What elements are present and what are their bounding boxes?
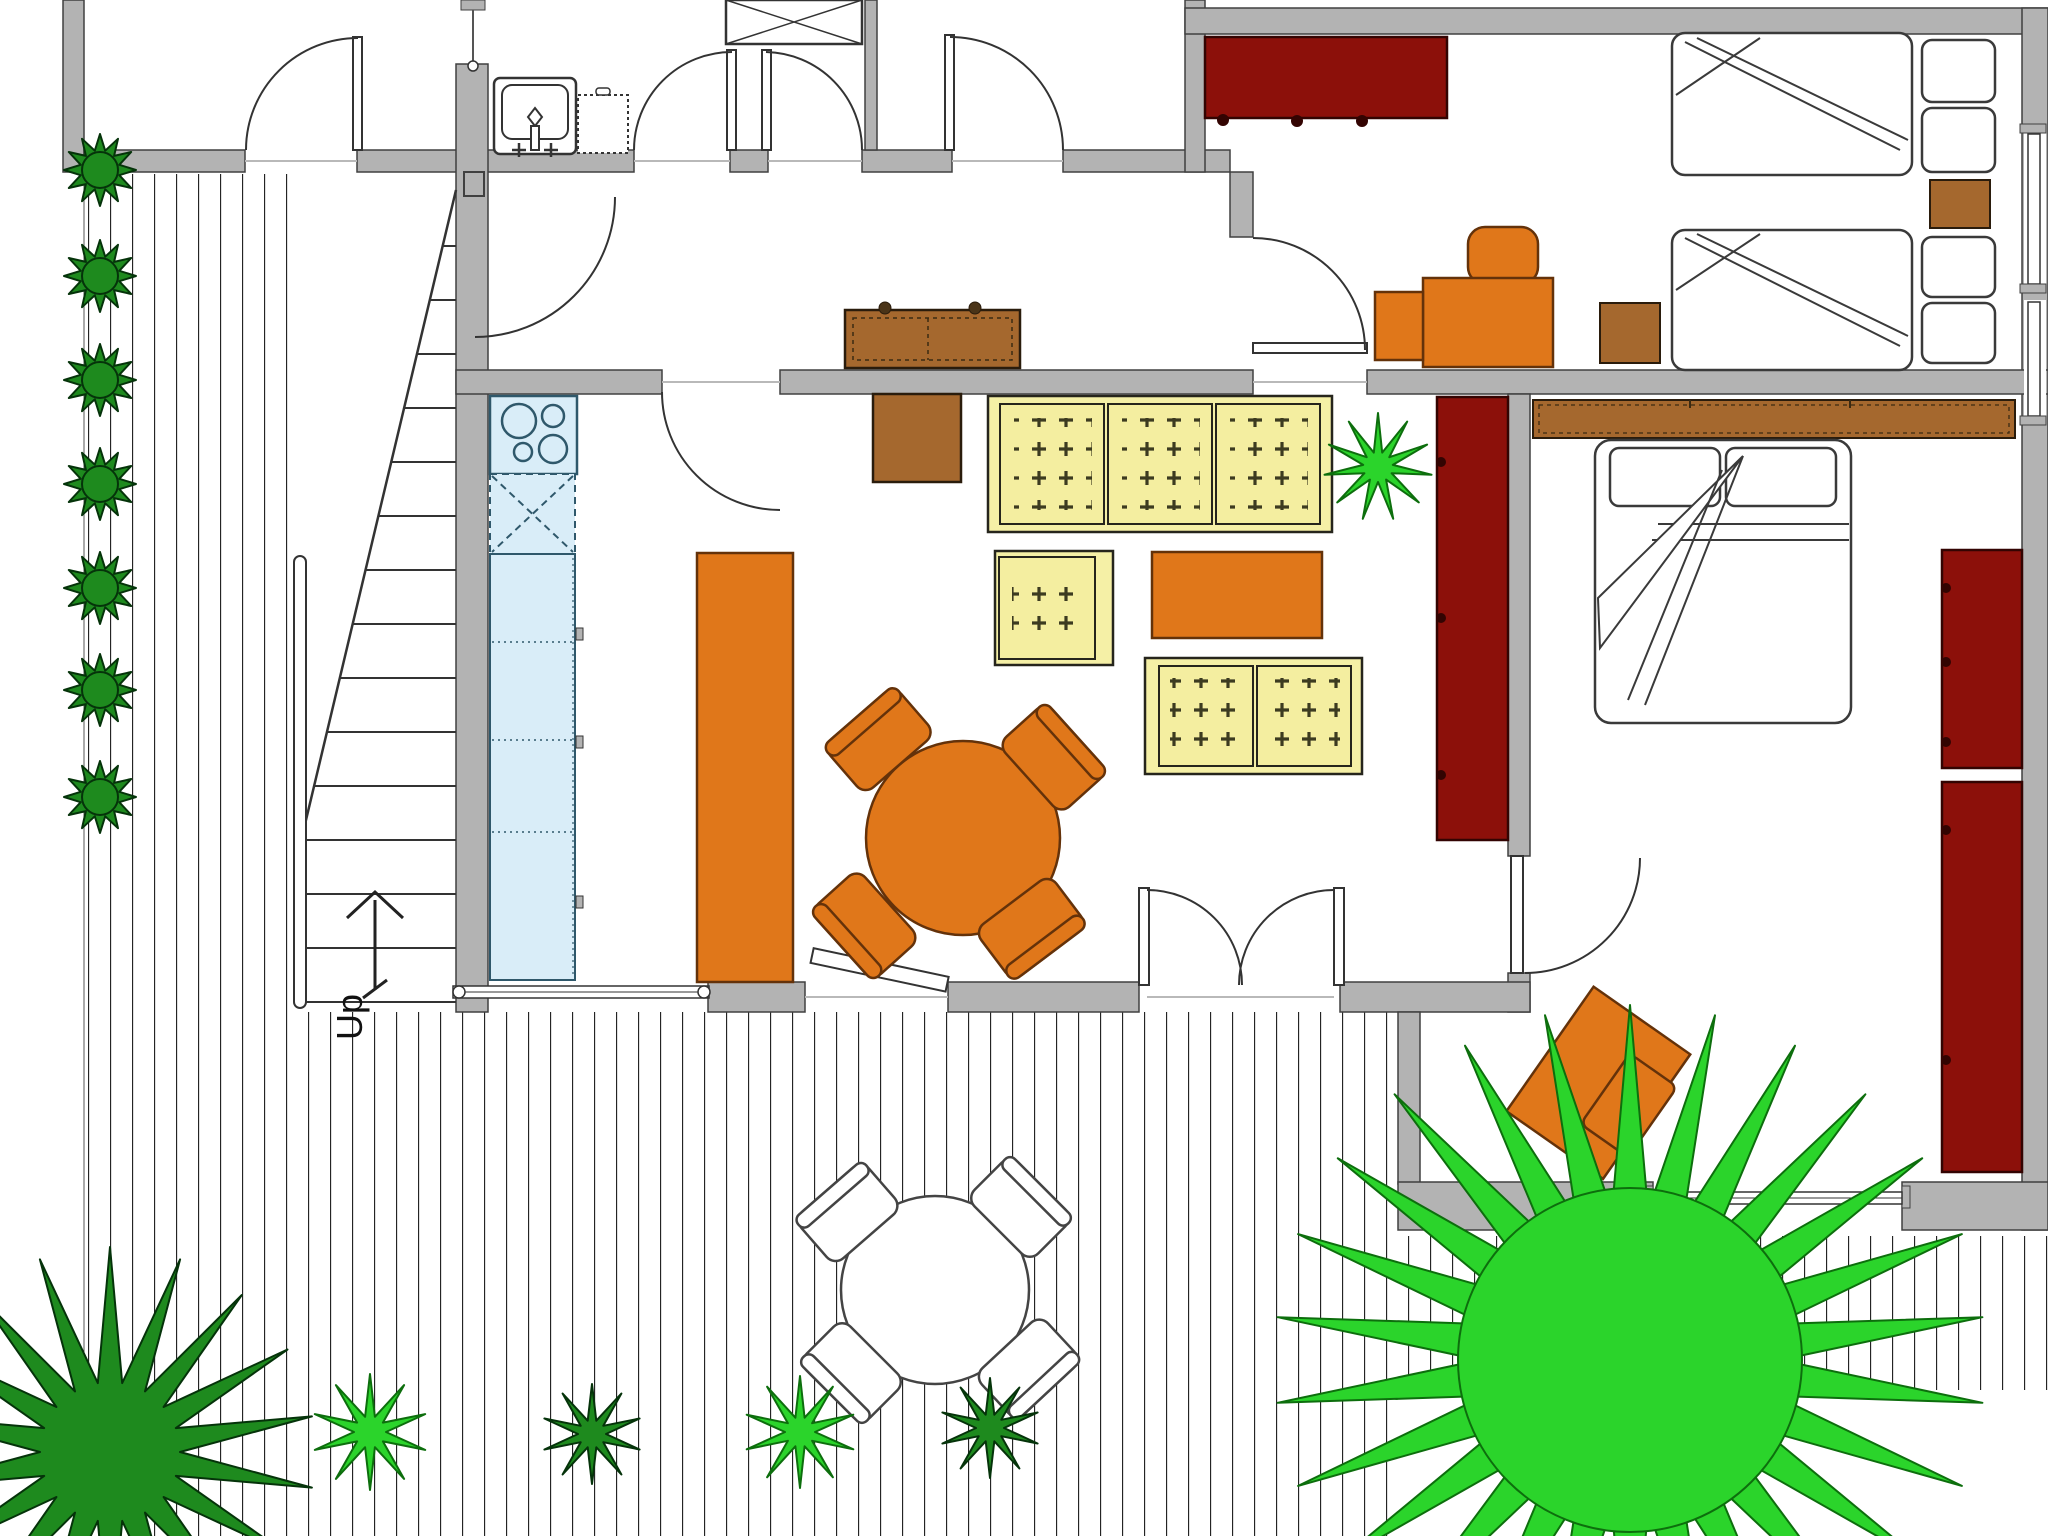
floor-plan-drawing: Up [0, 0, 2048, 1536]
dashed-cabinet[interactable] [578, 88, 628, 153]
door-french-left[interactable] [1139, 888, 1242, 985]
bathroom-fixtures [461, 0, 862, 157]
stove[interactable] [490, 396, 577, 474]
door-entry[interactable] [246, 37, 362, 150]
wall-vert-a4 [865, 0, 877, 150]
kitchen [490, 396, 793, 982]
pendant-fixture [461, 0, 485, 71]
sideboard[interactable] [845, 302, 1020, 368]
single-bed-2[interactable] [1672, 230, 1995, 370]
wall-living-b1 [456, 370, 662, 394]
door-french-right[interactable] [1239, 888, 1344, 985]
wall-bottom-s1 [708, 982, 805, 1012]
wall-top-post [730, 150, 768, 172]
wall-bedroom2-bottom-2 [1902, 1182, 2048, 1230]
living-room [810, 396, 1508, 982]
wall-living-bedroom2-upper [1508, 394, 1530, 856]
wall-stub-bedroom1-door [1230, 172, 1253, 237]
sink-unit[interactable] [490, 474, 575, 554]
nightstand-1[interactable] [1930, 180, 1990, 228]
bright-plant[interactable] [1325, 413, 1432, 519]
door-living-room[interactable] [662, 392, 780, 510]
wash-basin[interactable] [494, 78, 576, 157]
stair-rail [294, 556, 306, 1008]
wall-living-b3 [1367, 370, 2048, 394]
sofa-2-seat[interactable] [1145, 658, 1362, 774]
deck-main [84, 1012, 1398, 1536]
stair-up-arrow [347, 892, 403, 998]
double-bed[interactable] [1595, 440, 1851, 723]
wall-bottom-s3 [1340, 982, 1530, 1012]
sofa-3-seat[interactable] [988, 396, 1332, 532]
armchair[interactable] [995, 551, 1113, 665]
wall-bedroom2-west-lower [1398, 1012, 1420, 1184]
door-bedroom1[interactable] [1253, 238, 1367, 353]
wall-top-outer [1185, 8, 2048, 34]
red-cabinet-a[interactable] [1941, 550, 2022, 768]
wall-outer-left [63, 0, 84, 172]
side-table[interactable] [873, 394, 961, 482]
coffee-table[interactable] [1152, 552, 1322, 638]
door-bedroom2[interactable] [1511, 856, 1640, 973]
door-bathroom-right[interactable] [762, 50, 862, 150]
red-cabinet-bedroom1[interactable] [1205, 37, 1447, 127]
door-corridor-room[interactable] [945, 35, 1063, 150]
dresser-shelf[interactable] [1533, 400, 2015, 438]
red-wardrobe[interactable] [1436, 397, 1508, 840]
shower-enclosure[interactable] [726, 0, 862, 44]
red-cabinet-b[interactable] [1941, 782, 2022, 1172]
wall-living-b2 [780, 370, 1253, 394]
bedroom1 [1205, 33, 1995, 370]
nightstand-2[interactable] [1600, 303, 1660, 363]
door-bathroom-left[interactable] [634, 50, 736, 150]
staircase: Up [294, 190, 456, 1040]
bedroom1-desk[interactable] [1375, 227, 1553, 367]
base-counter[interactable] [490, 554, 583, 980]
island-counter[interactable] [697, 553, 793, 982]
wall-top-a3 [862, 150, 952, 172]
stairs-up-label: Up [329, 994, 370, 1040]
single-bed-1[interactable] [1672, 33, 1995, 175]
stair-break-line [296, 190, 456, 862]
window-kitchen-south [453, 986, 710, 998]
stair-treads [301, 246, 456, 1002]
wall-kitchen-west [456, 64, 488, 1012]
wall-bottom-s2 [948, 982, 1139, 1012]
floor-plan-canvas: Up [0, 0, 2048, 1536]
bedroom2 [1506, 400, 2022, 1183]
